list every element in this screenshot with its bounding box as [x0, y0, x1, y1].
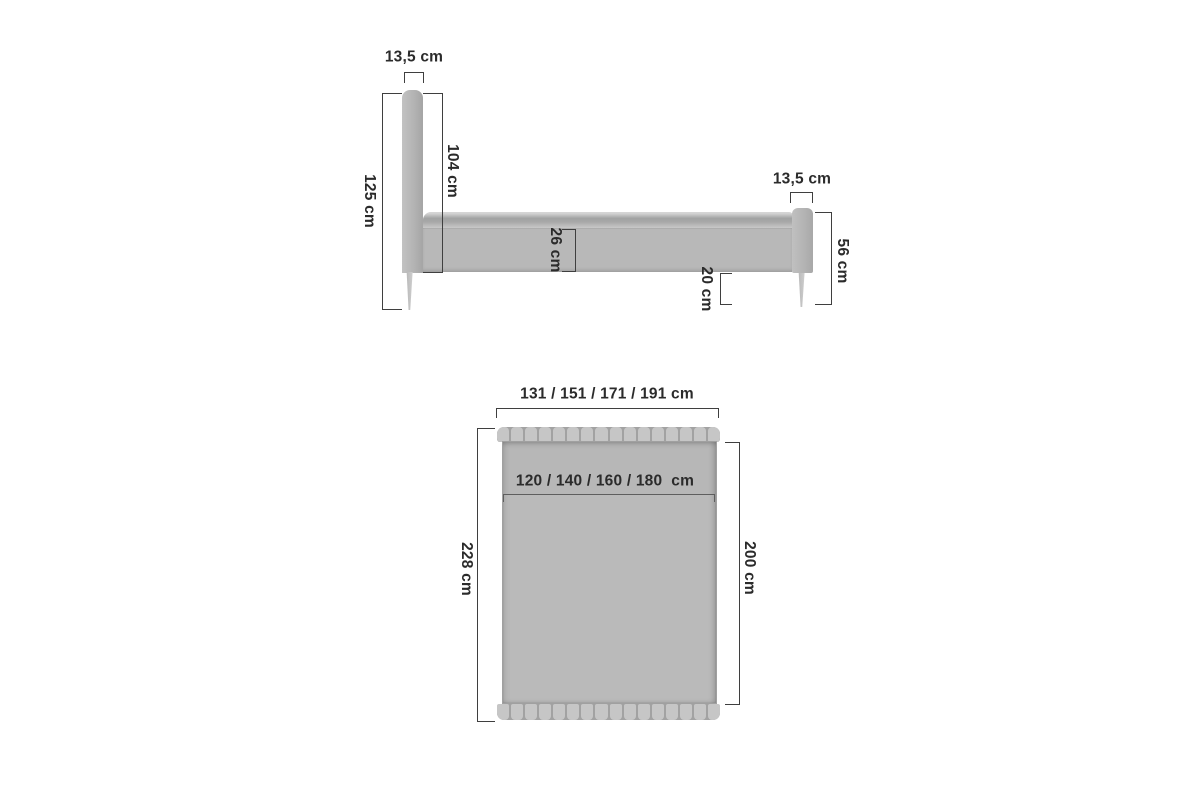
dim-label-underbed-clearance: 20 cm — [698, 267, 714, 312]
side-view-foot-leg — [796, 272, 808, 307]
tuft-segment — [497, 704, 509, 720]
tuft-segment — [610, 704, 622, 720]
top-view-headboard-tufting — [497, 427, 720, 442]
side-view-bed-frame — [423, 228, 792, 272]
tuft-segment — [595, 427, 607, 442]
tuft-segment — [652, 704, 664, 720]
tuft-segment — [652, 427, 664, 442]
top-view-mattress-area — [504, 495, 715, 702]
top-view-footboard-tufting — [497, 704, 720, 720]
dim-label-mattress-width-options: 120 / 140 / 160 / 180 cm — [516, 473, 694, 489]
tuft-segment — [567, 427, 579, 442]
dim-label-headboard-height: 104 cm — [444, 144, 460, 198]
dim-label-overall-length: 228 cm — [458, 542, 474, 596]
tuft-segment — [567, 704, 579, 720]
tuft-segment — [553, 704, 565, 720]
tuft-segment — [638, 427, 650, 442]
tuft-segment — [624, 704, 636, 720]
dim-bracket-frame-height — [562, 229, 576, 272]
tuft-segment — [694, 427, 706, 442]
tuft-segment — [511, 704, 523, 720]
dim-line-mattress-width — [503, 494, 715, 502]
dim-bracket-mattress-length — [725, 442, 740, 705]
tuft-segment — [525, 427, 537, 442]
tuft-segment — [610, 427, 622, 442]
tuft-segment — [708, 427, 720, 442]
dim-bracket-footboard-thickness — [790, 192, 813, 203]
dim-label-mattress-length: 200 cm — [741, 541, 757, 595]
tuft-segment — [581, 704, 593, 720]
tuft-segment — [624, 427, 636, 442]
side-view-head-leg — [404, 272, 416, 310]
dim-bracket-overall-length — [477, 428, 495, 722]
dim-bracket-overall-width — [496, 408, 719, 418]
side-view-mattress — [423, 212, 793, 228]
tuft-segment — [680, 427, 692, 442]
side-view-footboard — [792, 208, 813, 273]
tuft-segment — [666, 704, 678, 720]
dim-label-headboard-thickness: 13,5 cm — [385, 49, 443, 65]
dim-label-footboard-thickness: 13,5 cm — [773, 171, 831, 187]
tuft-segment — [680, 704, 692, 720]
tuft-segment — [539, 704, 551, 720]
tuft-segment — [581, 427, 593, 442]
dim-label-total-height: 125 cm — [361, 174, 377, 228]
dim-bracket-total-height — [382, 93, 402, 310]
tuft-segment — [666, 427, 678, 442]
dim-bracket-underbed-clearance — [720, 273, 732, 305]
tuft-segment — [525, 704, 537, 720]
dim-bracket-footboard-height — [815, 212, 832, 305]
dim-label-overall-width-options: 131 / 151 / 171 / 191 cm — [520, 386, 694, 402]
dim-label-footboard-height: 56 cm — [834, 239, 850, 284]
bed-dimensions-diagram: 13,5 cm 125 cm 104 cm 26 cm 13,5 cm 56 c… — [0, 0, 1200, 800]
tuft-segment — [511, 427, 523, 442]
tuft-segment — [553, 427, 565, 442]
tuft-segment — [708, 704, 720, 720]
tuft-segment — [539, 427, 551, 442]
tuft-segment — [694, 704, 706, 720]
dim-bracket-headboard-height — [423, 93, 443, 273]
tuft-segment — [497, 427, 509, 442]
tuft-segment — [638, 704, 650, 720]
dim-bracket-headboard-thickness — [404, 72, 424, 83]
tuft-segment — [595, 704, 607, 720]
side-view-headboard — [402, 90, 423, 273]
dim-label-frame-height: 26 cm — [547, 228, 563, 273]
